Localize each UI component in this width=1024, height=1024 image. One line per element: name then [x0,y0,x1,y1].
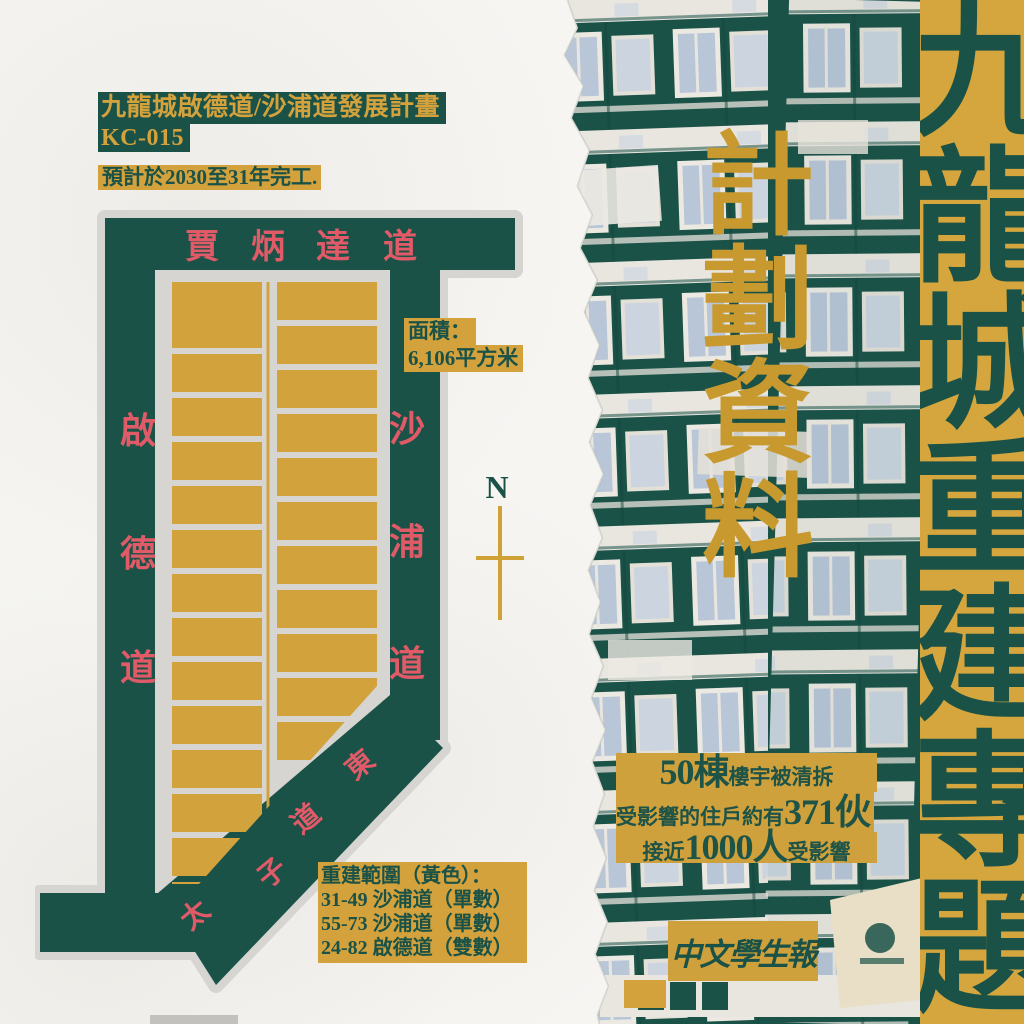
stat-households-label: 受影響的住戶約有 [616,805,784,829]
street-char: 達 [316,228,350,266]
bottom-edge-strip [150,1015,238,1024]
legend-item: 31-49 沙浦道（單數） [321,888,525,912]
legend-item: 55-73 沙浦道（單數） [321,912,525,936]
stat-households-value: 371伙 [784,792,870,832]
street-char: 炳 [251,228,285,266]
legend-box: 重建範圍（黃色）： 31-49 沙浦道（單數） 55-73 沙浦道（單數） 24… [318,862,527,963]
stats-box: 50棟樓宇被清拆 受影響的住戶約有371伙 接近1000人受影響 [616,753,877,863]
press-logo: 中文學生報 [668,921,818,981]
side-banner-title: 九龍城重建專題 [920,0,1024,1016]
stat-buildings-value: 50棟 [659,752,728,792]
poster-root: 九龍城啟德道/沙浦道發展計畫 KC-015 預計於2030至31年完工. [0,0,1024,1024]
legend-heading: 重建範圍（黃色）： [321,864,525,888]
street-char: 賈 [185,229,219,266]
street-char: 沙 [389,409,425,449]
area-label-value: 6,106平方米 [404,345,523,372]
compass-n-label: N [485,469,508,505]
stat-people-tail: 受影響 [788,840,851,864]
stat-people-value: 1000人 [684,827,787,867]
stats-line-households: 受影響的住戶約有371伙 [616,792,874,832]
legend-item: 24-82 啟德道（雙數） [321,936,525,960]
side-banner: 九龍城重建專題 [920,0,1024,1024]
street-char: 德 [120,534,156,574]
street-char: 道 [120,648,156,688]
completion-note: 預計於2030至31年完工. [98,165,321,190]
project-code: KC-015 [98,124,190,152]
street-char: 啟 [120,411,156,451]
area-label: 面積： 6,106平方米 [404,318,523,372]
stat-buildings-label: 樓宇被清拆 [729,765,834,789]
stat-people-lead: 接近 [642,840,684,864]
area-label-heading: 面積： [404,318,476,345]
project-title-block: 九龍城啟德道/沙浦道發展計畫 KC-015 預計於2030至31年完工. [98,92,446,190]
project-title: 九龍城啟德道/沙浦道發展計畫 [98,92,446,124]
street-char: 浦 [389,522,425,562]
stats-line-buildings: 50棟樓宇被清拆 [616,753,877,792]
compass-needle-icon [476,506,524,620]
photo-vertical-title: 計劃資料 [688,126,806,582]
street-char: 道 [383,228,417,266]
compass-north: N [476,469,524,620]
street-char: 道 [389,644,425,684]
stats-line-people: 接近1000人受影響 [616,832,877,863]
